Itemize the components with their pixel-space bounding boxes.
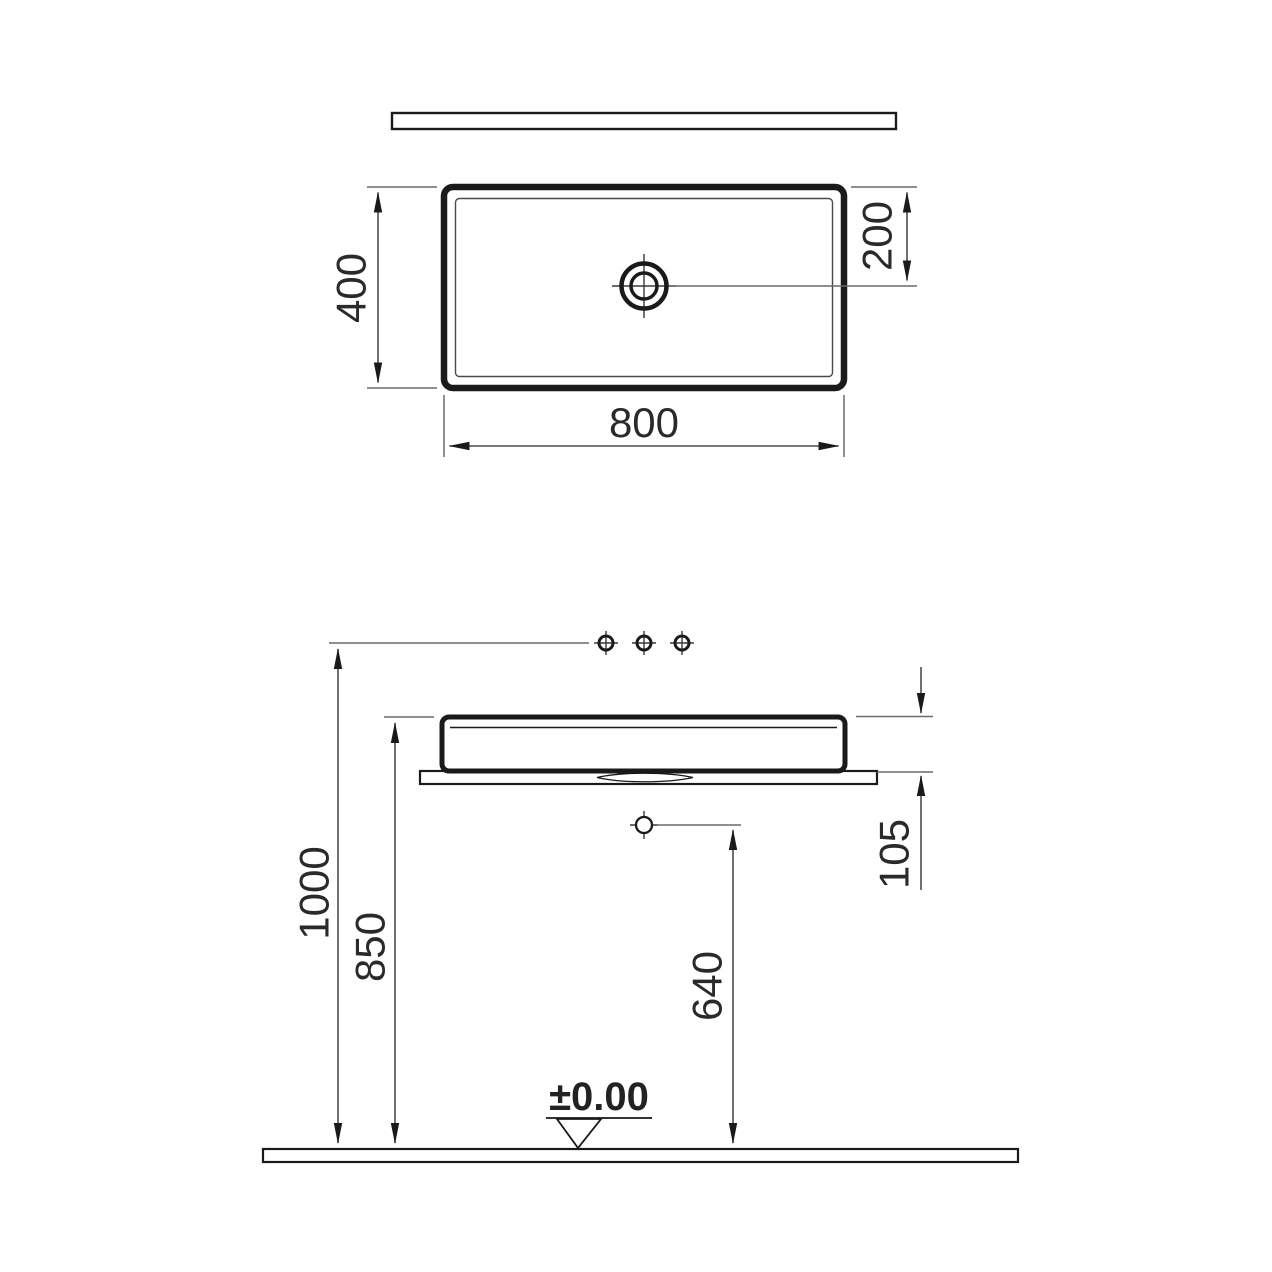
tap-hole-symbol [632, 631, 656, 655]
tap-hole-symbol [670, 631, 694, 655]
dim-tap-height-1000: 1000 [291, 649, 338, 1143]
basin-side-outline [442, 717, 845, 771]
floor-section [263, 1149, 1018, 1162]
dim-label-width: 800 [609, 399, 679, 446]
wall-section-strip [392, 113, 896, 129]
datum-triangle [557, 1119, 601, 1148]
dim-label-drain-offset: 200 [854, 201, 901, 271]
dim-bowl-height-105: 105 [856, 667, 933, 890]
dim-label-depth: 400 [328, 253, 375, 323]
dim-label-rim-height: 850 [347, 912, 394, 982]
technical-drawing-canvas: 400 800 200 [0, 0, 1272, 1272]
drain-outlet-side [630, 811, 741, 839]
basin-bottom-recess [597, 773, 693, 782]
dim-width-800: 800 [444, 395, 844, 457]
datum-label: ±0.00 [549, 1075, 649, 1119]
elevation-view: 105 640 1000 850 ±0.00 [263, 631, 1018, 1162]
dim-label-tap-height: 1000 [291, 846, 338, 939]
dim-depth-400: 400 [328, 187, 437, 388]
dim-label-bowl-height: 105 [871, 819, 918, 889]
drain-outer-circle [622, 264, 667, 309]
dim-label-drain-height: 640 [684, 951, 731, 1021]
dim-drain-height-640: 640 [684, 830, 733, 1143]
tap-holes [329, 631, 694, 655]
plan-view: 400 800 200 [328, 113, 917, 457]
drawing-svg: 400 800 200 [0, 0, 1272, 1272]
tap-hole-symbol [594, 631, 618, 655]
floor-datum: ±0.00 [546, 1075, 652, 1148]
